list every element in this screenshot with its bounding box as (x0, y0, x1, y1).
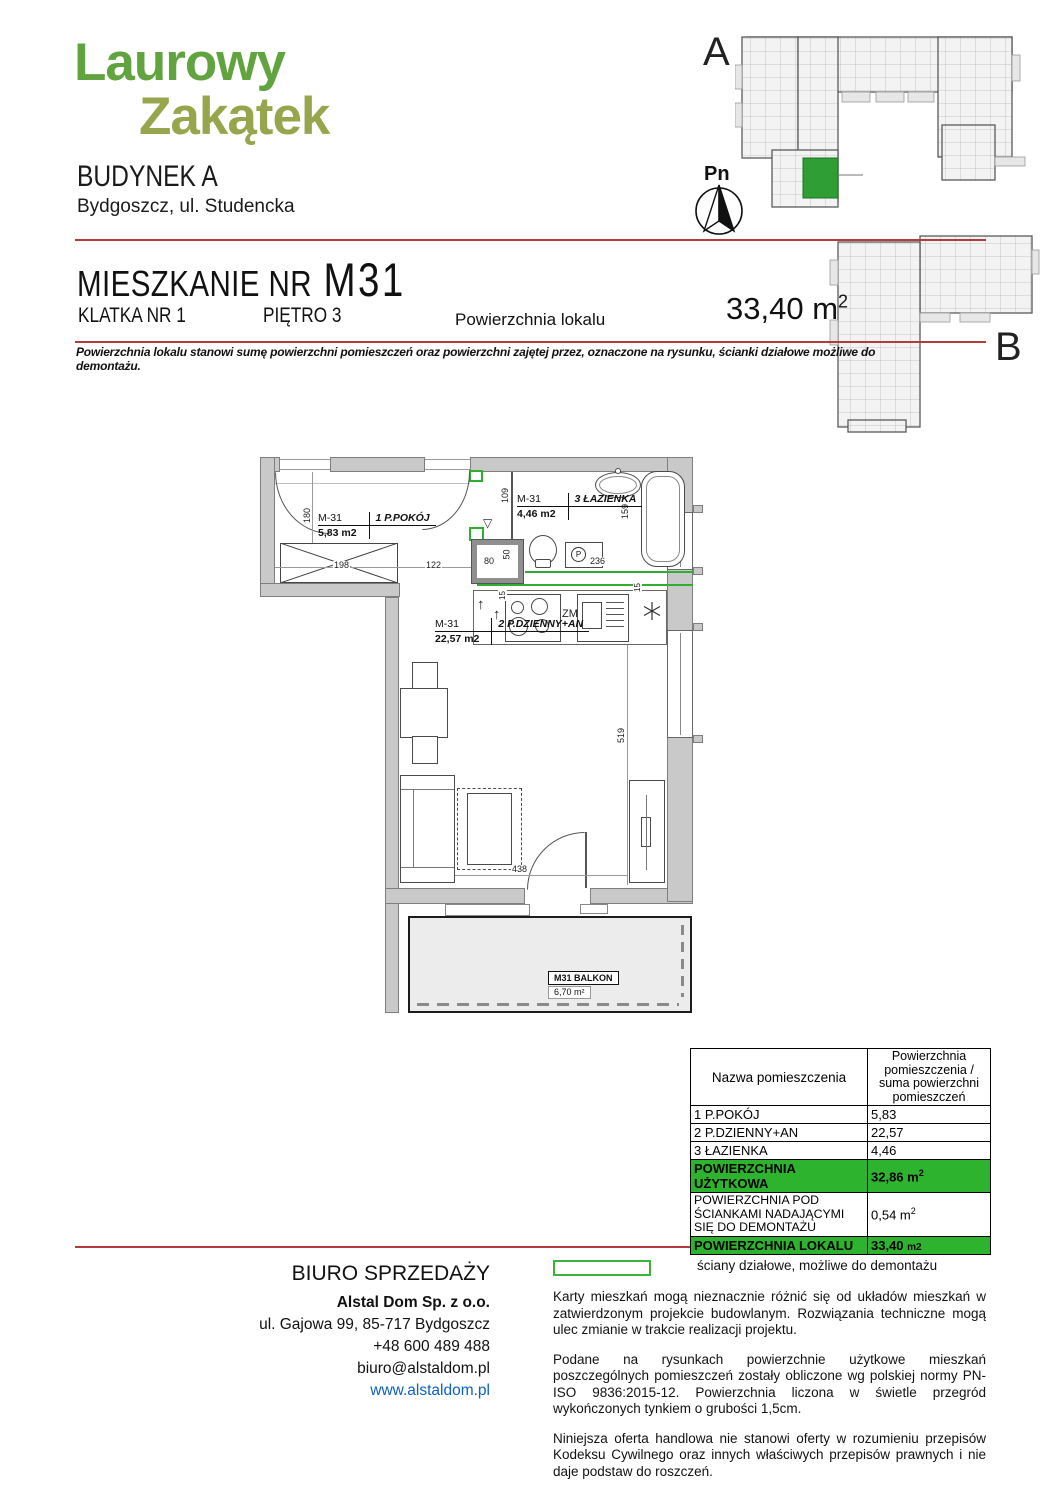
disclaimer-paragraph: Podane na rysunkach powierzchnie użytkow… (553, 1352, 986, 1418)
total-area-value: 33,40 m2 (868, 1236, 991, 1254)
highlighted-unit (803, 158, 838, 198)
dim-counter: 15 (498, 590, 507, 601)
building-address: Bydgoszcz, ul. Studencka (77, 196, 295, 218)
dim-counter: 15 (633, 582, 642, 593)
burner (531, 598, 548, 615)
dim-line (275, 567, 473, 568)
table-row-demountable: POWIERZCHNIA POD ŚCIANKAMI NADAJĄCYMI SI… (691, 1193, 991, 1237)
apartment-title: MIESZKANIE NR M31 (77, 252, 406, 307)
floor-label: PIĘTRO 3 (263, 304, 341, 328)
building-name: BUDYNEK A (77, 160, 218, 194)
room-label-living: M-31 2 P.DZIENNY+AN 22,57 m2 (435, 618, 589, 645)
table-row-total: POWIERZCHNIA LOKALU 33,40 m2 (691, 1236, 991, 1254)
balcony-door-leaf (585, 832, 587, 888)
company-email: biuro@alstaldom.pl (95, 1358, 490, 1380)
disclaimer-paragraph: Karty mieszkań mogą nieznacznie różnić s… (553, 1289, 986, 1339)
area-label: Powierzchnia lokalu (455, 310, 605, 330)
company-phone: +48 600 489 488 (95, 1336, 490, 1358)
wall (385, 597, 399, 1013)
room-area: 4,46 m2 (517, 507, 568, 520)
areas-table: Nazwa pomieszczenia Powierzchnia pomiesz… (690, 1048, 991, 1255)
table-row: 3 ŁAZIENKA 4,46 (691, 1142, 991, 1160)
wall (260, 457, 275, 597)
area-note: Powierzchnia lokalu stanowi sumę powierz… (76, 345, 926, 373)
mini-floorplan-b (820, 230, 1040, 435)
compass-icon (692, 183, 752, 239)
chair (412, 736, 438, 764)
dim-shaft-height: 50 (503, 548, 512, 560)
demountable-wall-line (525, 571, 693, 573)
demountable-wall-line (477, 584, 693, 586)
wall (330, 457, 425, 472)
table-row: 2 P.DZIENNY+AN 22,57 (691, 1124, 991, 1142)
overview-label-a: A (703, 30, 730, 75)
wall (693, 567, 703, 575)
sales-office-title: BIURO SPRZEDAŻY (95, 1262, 490, 1286)
toilet-base (535, 559, 551, 568)
mini-floorplan-a (735, 25, 1045, 225)
interior-door-opening (425, 459, 470, 470)
installation-shaft (472, 540, 523, 583)
room-label-hall: M-31 1 P.POKÓJ 5,83 m2 (318, 512, 436, 539)
divider-top (75, 239, 986, 241)
staircase-label: KLATKA NR 1 (78, 304, 186, 328)
living-room-window (667, 630, 693, 738)
balcony-area: 6,70 m² (548, 986, 591, 999)
legend-row: ściany działowe, możliwe do demontażu (553, 1258, 986, 1276)
dim-shaft-width: 80 (483, 557, 495, 566)
balcony-door-swing (527, 832, 585, 890)
demountable-label: POWIERZCHNIA POD ŚCIANKAMI NADAJĄCYMI SI… (691, 1193, 868, 1237)
sofa-line (413, 790, 414, 867)
wall (260, 583, 400, 597)
demountable-wall-marker (469, 527, 484, 541)
balcony-railing (417, 1003, 679, 1006)
chair (412, 662, 438, 690)
area-value: 33,40 m2 (726, 291, 848, 327)
foldout-bed (467, 793, 512, 865)
burner (511, 601, 524, 614)
room-name: 2 P.DZIENNY+AN (491, 618, 589, 632)
dim-wardrobe: 198 (333, 561, 350, 570)
tv-cabinet-line (646, 795, 647, 870)
dim-line (312, 472, 313, 543)
door-threshold (580, 904, 608, 914)
wall (470, 457, 693, 472)
demountable-wall-marker (469, 470, 483, 482)
balcony-railing (681, 925, 684, 997)
apartment-card-page: Laurowy Zakątek BUDYNEK A Bydgoszcz, ul.… (0, 0, 1061, 1500)
room-name-cell: 3 ŁAZIENKA (691, 1142, 868, 1160)
demountable-wall-legend-swatch (553, 1260, 651, 1276)
total-area-label: POWIERZCHNIA LOKALU (691, 1236, 868, 1254)
boiler-symbol (643, 602, 661, 620)
table-row: 1 P.POKÓJ 5,83 (691, 1106, 991, 1124)
bathtub (641, 471, 685, 567)
useful-area-value: 32,86 m2 (868, 1160, 991, 1193)
room-code: M-31 (435, 618, 491, 632)
faucet (615, 468, 621, 474)
title-prefix: MIESZKANIE NR (77, 263, 312, 305)
dim-hall-width: 122 (425, 561, 442, 570)
wall (693, 505, 703, 513)
company-address: ul. Gajowa 99, 85-717 Bydgoszcz (95, 1314, 490, 1336)
balcony-name: M31 BALKON (548, 971, 619, 985)
disclaimer-paragraph: Niniejsza oferta handlowa nie stanowi of… (553, 1431, 986, 1481)
sink-drainer (606, 602, 624, 630)
room-code: M-31 (517, 493, 568, 507)
table-header-name: Nazwa pomieszczenia (691, 1049, 868, 1106)
entrance-door-opening (280, 459, 330, 470)
room-code: M-31 (318, 512, 369, 526)
legal-block: ściany działowe, możliwe do demontażu Ka… (553, 1258, 986, 1480)
room-name: 3 ŁAZIENKA (568, 493, 643, 507)
sofa-line (401, 867, 454, 868)
logo-line1: Laurowy (74, 32, 285, 93)
useful-area-label: POWIERZCHNIA UŻYTKOWA (691, 1160, 868, 1193)
room-area-cell: 4,46 (868, 1142, 991, 1160)
room-name-cell: 1 P.POKÓJ (691, 1106, 868, 1124)
door-threshold (445, 904, 530, 916)
door-direction-marker: ▽ (483, 517, 492, 529)
room-area-cell: 22,57 (868, 1124, 991, 1142)
demountable-value: 0,54 m2 (868, 1193, 991, 1237)
sales-office-block: BIURO SPRZEDAŻY Alstal Dom Sp. z o.o. ul… (95, 1262, 490, 1402)
wall (693, 623, 703, 631)
dim-room-height: 519 (617, 727, 626, 744)
wall (693, 735, 703, 743)
room-name-cell: 2 P.DZIENNY+AN (691, 1124, 868, 1142)
dim-room-width: 438 (511, 865, 528, 874)
room-area-cell: 5,83 (868, 1106, 991, 1124)
legend-label: ściany działowe, możliwe do demontażu (697, 1258, 937, 1273)
washing-machine-symbol: P (571, 547, 586, 562)
divider-title (75, 341, 986, 343)
sofa-line (401, 789, 454, 790)
table-header-area: Powierzchnia pomieszczenia / suma powier… (868, 1049, 991, 1106)
dim-washer: 236 (589, 557, 606, 566)
room-name: 1 P.POKÓJ (369, 512, 436, 526)
company-name: Alstal Dom Sp. z o.o. (95, 1292, 490, 1314)
room-label-bathroom: M-31 3 ŁAZIENKA 4,46 m2 (517, 493, 642, 520)
dim-bath-corridor: 109 (501, 487, 510, 504)
room-area: 5,83 m2 (318, 526, 369, 539)
company-website-link[interactable]: www.alstaldom.pl (95, 1380, 490, 1402)
logo-line2: Zakątek (139, 86, 329, 147)
unit-number: M31 (323, 252, 405, 307)
vent-arrow-icon: ↑ (477, 597, 485, 612)
table (400, 688, 448, 738)
dim-hall-height: 180 (303, 507, 312, 524)
floor-plan: ▽ 80 50 P 236 159 109 ↑ ↑ (255, 455, 705, 1030)
table-row-useful-area: POWIERZCHNIA UŻYTKOWA 32,86 m2 (691, 1160, 991, 1193)
wall (385, 888, 525, 904)
room-area: 22,57 m2 (435, 632, 491, 645)
